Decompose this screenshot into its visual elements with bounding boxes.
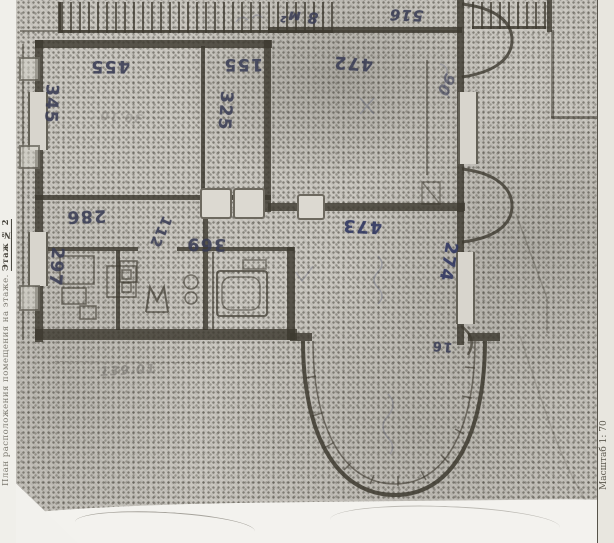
handwritten-number-note: 516 xyxy=(389,5,424,24)
scanned-floor-plan-page: 455 345 155 325 472 286 297 112 369 473 … xyxy=(0,0,614,543)
pencil-total-note: 139.01 xyxy=(100,362,157,380)
neighbor-outline xyxy=(516,214,590,506)
plan-caption-text: План расположения помещения на этаже. xyxy=(1,274,11,486)
dim-room1-depth: 345 xyxy=(40,84,61,125)
sink xyxy=(184,252,213,330)
dim-room2-depth: 325 xyxy=(214,90,237,131)
left-margin-caption: План расположения помещения на этаже. Эт… xyxy=(1,250,11,486)
plan-drawing-layer xyxy=(0,0,614,543)
kitchen-fixtures xyxy=(60,256,136,319)
dim-bay-offset: 16 xyxy=(431,338,453,355)
dim-room4-width: 473 xyxy=(342,215,383,237)
pencil-room1-note: 30.10 xyxy=(99,109,143,126)
toilet xyxy=(120,261,168,312)
dim-hall-depth: 297 xyxy=(45,246,68,287)
bay-window-right-upper xyxy=(461,4,512,355)
scale-caption: Масштаб 1: 70 xyxy=(599,420,609,490)
bay-window-bottom xyxy=(303,341,485,495)
dim-hall-width: 286 xyxy=(66,205,107,226)
dim-room1-width: 455 xyxy=(90,56,130,76)
dim-room3-width: 472 xyxy=(332,52,373,75)
bathtub xyxy=(217,260,267,316)
duct xyxy=(422,182,440,204)
dim-corridor-width: 369 xyxy=(186,234,226,255)
dim-room2-width: 155 xyxy=(223,54,263,74)
floor-number-note: Этаж № 2 xyxy=(1,219,11,271)
handwritten-area-note: 8 м² xyxy=(279,7,318,27)
